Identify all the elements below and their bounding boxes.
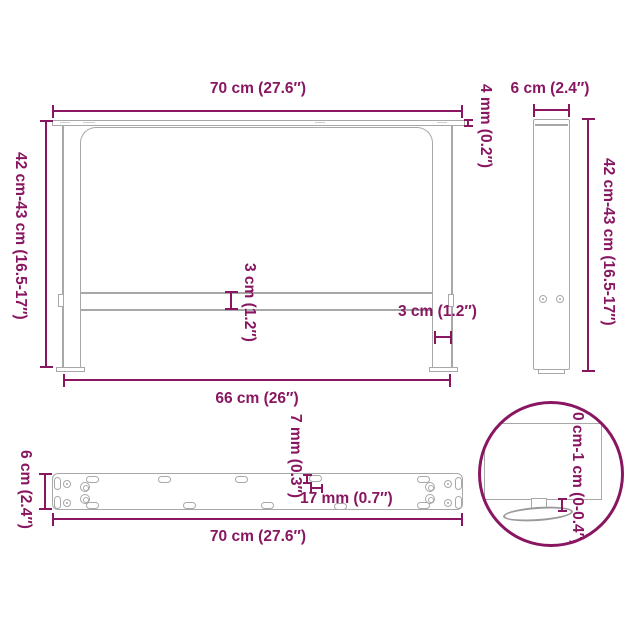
slot-hole — [417, 502, 430, 509]
slot-hole — [309, 475, 322, 482]
slot-hole — [455, 496, 462, 509]
plate-slot-mark — [437, 122, 447, 124]
plate-slot-mark — [315, 122, 325, 124]
left-leg-outer-edge — [62, 125, 64, 368]
leg-width-marker — [434, 336, 452, 338]
plate-slot-mark — [83, 122, 95, 124]
slot-hole — [183, 502, 196, 509]
slot-hole — [158, 476, 171, 483]
crossbar-thickness-marker — [230, 291, 232, 310]
slot-hole — [235, 476, 248, 483]
side-plate-edge — [535, 124, 568, 126]
dimension-diagram: 70 cm (27.6″) 4 mm (0.2″) 42 cm-43 cm (1… — [0, 0, 640, 640]
front-top-width-label: 70 cm (27.6″) — [168, 80, 348, 98]
plate-thickness-label: 4 mm (0.2″) — [476, 84, 495, 168]
left-foot-plate — [56, 367, 85, 372]
screw-head-hole — [425, 482, 435, 492]
hole-width-marker — [306, 474, 308, 484]
screw-hole — [444, 480, 452, 488]
hole-length-marker — [310, 487, 323, 489]
screw-hole — [63, 480, 71, 488]
bar-hole-width-label: 7 mm (0.3″) — [286, 414, 305, 498]
front-top-width-dim-line — [52, 110, 463, 112]
slot-hole — [54, 496, 61, 509]
screw-hole — [444, 499, 452, 507]
bar-depth-dim-line — [44, 473, 46, 510]
front-inner-width-dim-line — [63, 379, 451, 381]
side-depth-dim-line — [533, 109, 570, 111]
front-mounting-plate — [52, 120, 465, 126]
screw-head-hole — [80, 482, 90, 492]
slot-hole — [455, 477, 462, 490]
slot-hole — [86, 502, 99, 509]
front-inner-width-label: 66 cm (26″) — [178, 390, 336, 408]
right-foot-plate — [429, 367, 458, 372]
side-depth-label: 6 cm (2.4″) — [504, 80, 596, 98]
slot-hole — [86, 476, 99, 483]
bar-depth-label: 6 cm (2.4″) — [16, 450, 35, 529]
side-height-label: 42 cm-43 cm (16.5-17″) — [599, 158, 618, 326]
leg-width-label: 3 cm (1.2″) — [398, 303, 472, 321]
front-height-dim-line — [45, 120, 47, 368]
side-height-dim-line — [587, 118, 589, 372]
screw-hole — [556, 295, 564, 303]
side-foot-plate — [538, 369, 565, 374]
front-height-label: 42 cm-43 cm (16.5-17″) — [11, 152, 30, 320]
mounting-bar — [52, 473, 463, 510]
bar-length-dim-line — [52, 518, 463, 520]
slot-hole — [417, 476, 430, 483]
side-leg-body — [533, 119, 570, 370]
crossbar-joint-left — [58, 294, 64, 307]
bar-length-label: 70 cm (27.6″) — [168, 528, 348, 546]
slot-hole — [261, 502, 274, 509]
plate-slot-mark — [60, 122, 70, 124]
bar-hole-length-label: 17 mm (0.7″) — [300, 490, 393, 508]
crossbar-thickness-label: 3 cm (1.2″) — [240, 263, 259, 342]
plate-thickness-marker — [467, 119, 469, 127]
detail-circle-outline — [478, 401, 624, 547]
screw-hole — [63, 499, 71, 507]
slot-hole — [54, 477, 61, 490]
screw-hole — [539, 295, 547, 303]
